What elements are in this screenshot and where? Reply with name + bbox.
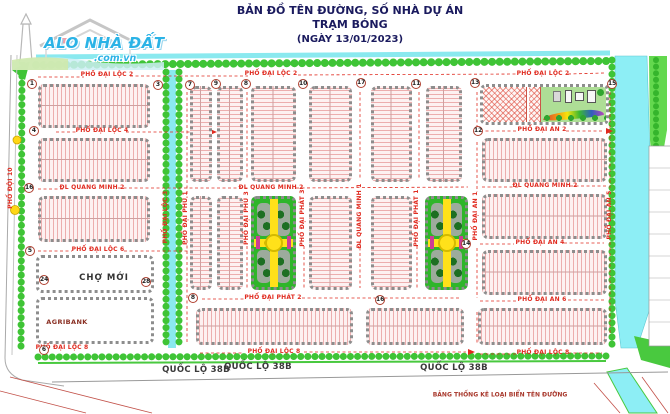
block-number-marker: 3 [153,80,163,90]
street-label-dai-loc-6: PHỐ ĐẠI LỘC 6 [72,247,125,253]
block-number-marker: 12 [473,126,483,136]
street-label-dai-an-2: PHỐ ĐẠI AN 2 [518,127,567,133]
street-label-dai-loc-2: PHỐ ĐẠI LỘC 2 [81,72,134,78]
street-label-dai-phu-1: PHỐ ĐẠI PHÚ 1 [183,191,189,245]
highway-label: QUỐC LỘ 38B [224,363,292,372]
lot-block [38,138,150,182]
block-number-marker: 14 [461,239,471,249]
lot-block [482,250,607,295]
street-label-dai-loc-8: PHỐ ĐẠI LỘC 8 [517,350,570,356]
building [575,92,584,101]
building [553,91,561,102]
block-number-marker: 10 [298,79,308,89]
street-label-dai-phu-3: PHỐ ĐẠI PHÚ 3 [244,191,250,245]
bank-label: AGRIBANK [46,318,87,326]
lot-block [309,86,352,182]
lot-block [217,196,243,290]
block-number-marker: 8 [188,293,198,303]
lot-block [251,86,296,182]
lot-block [366,308,464,345]
map-canvas: CHỢ MỚI AGRIBANK PHỐ ĐẠI LỘC 2 PHỐ ĐẠI L… [0,0,670,414]
street-label-dai-an-6: PHỐ ĐẠI AN 6 [518,297,567,303]
block-number-marker: 15 [607,79,617,89]
special-block [480,84,609,125]
street-label-dai-loc-2: PHỐ ĐẠI LỘC 2 [245,71,298,77]
market-label: CHỢ MỚI [79,273,129,283]
block-number-marker: 9 [211,79,221,89]
logo-domain-text: .com.vn [94,53,136,64]
building [587,90,596,103]
street-label-dai-loc-2: PHỐ ĐẠI LỘC 2 [517,71,570,77]
lot-block [482,138,607,182]
lot-block [371,86,412,182]
street-sign-table-fragment [649,146,670,346]
block-number-marker: 11 [411,79,421,89]
park-block [251,196,296,290]
map-title-line1: BẢN ĐỒ TÊN ĐƯỜNG, SỐ NHÀ DỰ ÁN TRẠM BÓNG [230,4,470,33]
street-label-dai-loc-3: PHỐ ĐẠI LỘC 3 [163,191,169,244]
lot-block [482,194,607,239]
legend-note: BẢNG THỐNG KÊ LOẠI BIỂN TÊN ĐƯỜNG [433,392,568,399]
street-label-quang-minh-1: ĐL QUANG MINH 1 [357,184,363,249]
lot-block [371,196,412,290]
block-number-marker: 4 [29,126,39,136]
map-title: BẢN ĐỒ TÊN ĐƯỜNG, SỐ NHÀ DỰ ÁN TRẠM BÓNG… [230,4,470,47]
street-label-dai-an-4: PHỐ ĐẠI AN 4 [516,240,565,246]
block-number-marker: 8 [241,79,251,89]
lot-block [38,196,150,242]
lot-block [190,196,212,290]
block-number-marker: 24 [39,275,49,285]
street-label-quang-minh-2: ĐL QUANG MINH 2 [513,183,578,189]
highway-ql38b [0,356,668,413]
roundabout-icon [265,234,283,252]
block-number-marker: 13 [470,78,480,88]
block-number-marker: 7 [185,80,195,90]
building [565,90,572,103]
logo-text: ALO NHÀ ĐẤT [44,34,165,52]
street-label-dai-phat-1: PHỐ ĐẠI PHÁT 1 [414,189,420,246]
block-number-marker: 16 [375,295,385,305]
block-number-marker: 1 [27,79,37,89]
tree-row [541,114,606,122]
logo: ALO NHÀ ĐẤT .com.vn [6,10,166,70]
street-label-doi-10: PHỐ ĐỘI 10 [8,167,14,208]
lot-block [190,86,212,182]
highway-label: QUỐC LỘ 38B [420,364,488,373]
block-number-marker: 17 [356,78,366,88]
block-number-marker: 16 [24,183,34,193]
lot-block [309,196,352,290]
block-number-marker: 5 [25,246,35,256]
hatched-reserve-area [483,87,541,122]
street-label-dai-an-1: PHỐ ĐẠI AN 1 [473,192,479,241]
lot-block [217,86,243,182]
block-number-marker: 28 [141,277,151,287]
lot-block [478,308,607,345]
map-symbol [13,136,21,144]
map-title-line2: (NGÀY 13/01/2023) [230,33,470,47]
tree [597,89,604,96]
street-label-dai-phat-3: PHỐ ĐẠI PHÁT 3 [300,189,306,246]
lot-block [38,84,150,128]
street-label-dai-loc-4: PHỐ ĐẠI LỘC 4 [76,128,129,134]
highway-label: QUỐC LỘ 38B [162,366,230,375]
facility-compound [541,87,606,122]
street-label-dai-an-5: PHỐ ĐẠI AN 5 [607,191,613,240]
roundabout-icon [438,234,456,252]
lot-block [196,308,353,345]
street-label-dai-loc-8: PHỐ ĐẠI LỘC 8 [248,349,301,355]
street-label-quang-minh-2: ĐL QUANG MINH 2 [60,185,125,191]
lot-block [426,86,462,182]
block-number-marker: 6 [39,345,49,355]
street-label-dai-phat-2: PHỐ ĐẠI PHÁT 2 [244,295,301,301]
